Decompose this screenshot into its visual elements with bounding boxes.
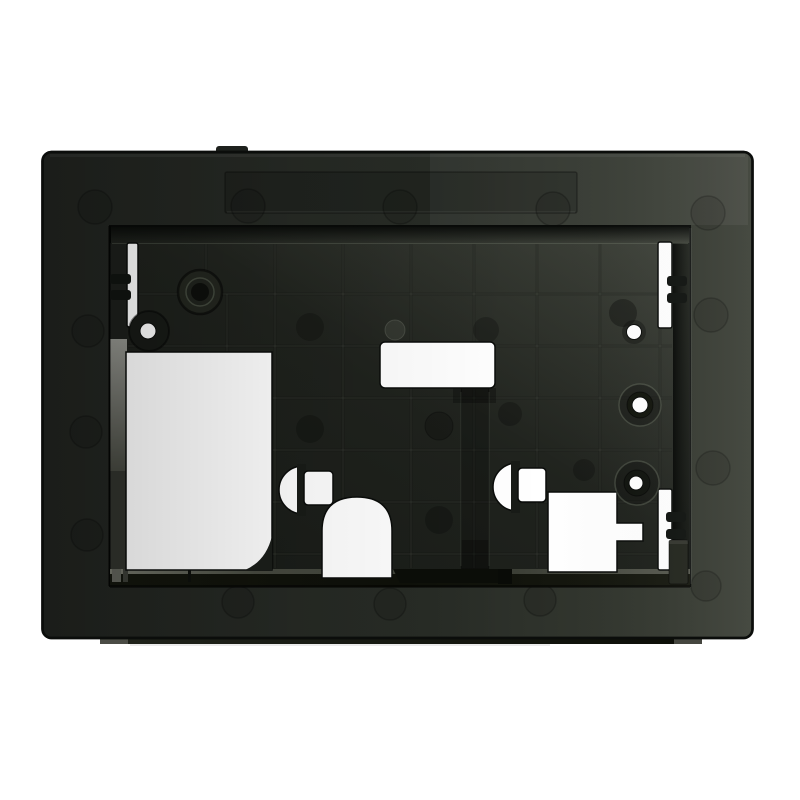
photo-stage [0, 0, 800, 800]
flange-shadow [130, 644, 550, 646]
product-photo [0, 0, 800, 800]
mounting-frame-illustration [0, 0, 800, 800]
global-light-overlay [43, 152, 753, 638]
